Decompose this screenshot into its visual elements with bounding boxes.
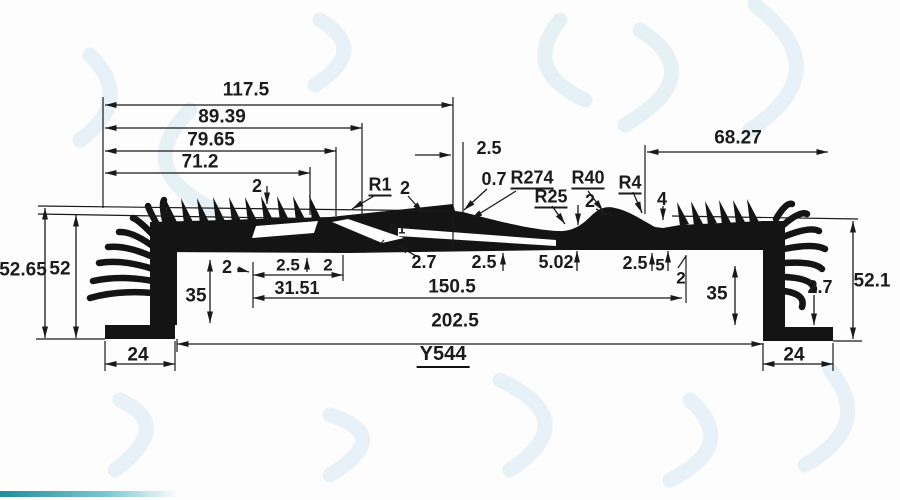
dim-left-lip: 2 (222, 258, 232, 276)
dim-top-c: 71.2 (182, 153, 219, 172)
heatsink-profile-canvas (0, 0, 900, 500)
dim-left-height: 52 (49, 260, 70, 279)
dim-right-height: 52.1 (854, 272, 891, 291)
dim-left-cavity: 35 (185, 287, 206, 306)
dim-right-base-thk: 2.7 (807, 278, 832, 296)
dim-bottom-tc: 2.7 (411, 253, 436, 271)
dim-bump-height: 4 (657, 190, 667, 208)
radius-r25-label: R25 (534, 188, 567, 209)
dim-bottom-th: 2 (676, 270, 685, 287)
dim-top-step: 2.5 (476, 139, 501, 157)
dim-left-foot: 24 (127, 346, 148, 365)
part-number: Y544 (417, 344, 470, 368)
radius-r1-label: R1 (368, 176, 391, 197)
radius-r40-label: R40 (571, 169, 604, 190)
dim-left-height-outer: 52.65 (0, 261, 47, 280)
dim-bottom-tb: 2 (323, 257, 332, 274)
dim-right-foot: 24 (783, 346, 804, 365)
dim-bottom-tg: 5 (655, 257, 664, 274)
dim-top-overall: 117.5 (223, 81, 270, 100)
dim-bottom-ta: 2.5 (276, 257, 300, 274)
dim-r1-thickness: 2 (400, 179, 410, 197)
radius-r1-inner-label: R1 (389, 223, 406, 236)
dim-overall-width: 202.5 (431, 312, 479, 331)
dim-step-small: 0.7 (481, 170, 506, 188)
dim-inner-width: 150.5 (428, 278, 476, 297)
dim-bottom-tf: 2.5 (622, 254, 647, 272)
teal-scan-bar (0, 491, 178, 497)
dim-right-top-width: 68.27 (714, 129, 762, 148)
dim-bottom-td: 2.5 (471, 253, 496, 271)
dim-dome-thickness: 2 (585, 192, 595, 210)
dim-top-b: 79.65 (187, 131, 235, 150)
radius-r4-label: R4 (618, 174, 641, 195)
dim-top-gap: 2 (252, 177, 262, 195)
dim-right-cavity: 35 (706, 285, 727, 304)
dim-top-a: 89.39 (198, 108, 246, 127)
dim-bottom-te: 5.02 (538, 253, 573, 271)
engineering-drawing: 117.5 89.39 79.65 71.2 2 2.5 R1 2 0.7 R2… (0, 0, 900, 500)
dim-slot-width: 31.51 (274, 279, 319, 297)
